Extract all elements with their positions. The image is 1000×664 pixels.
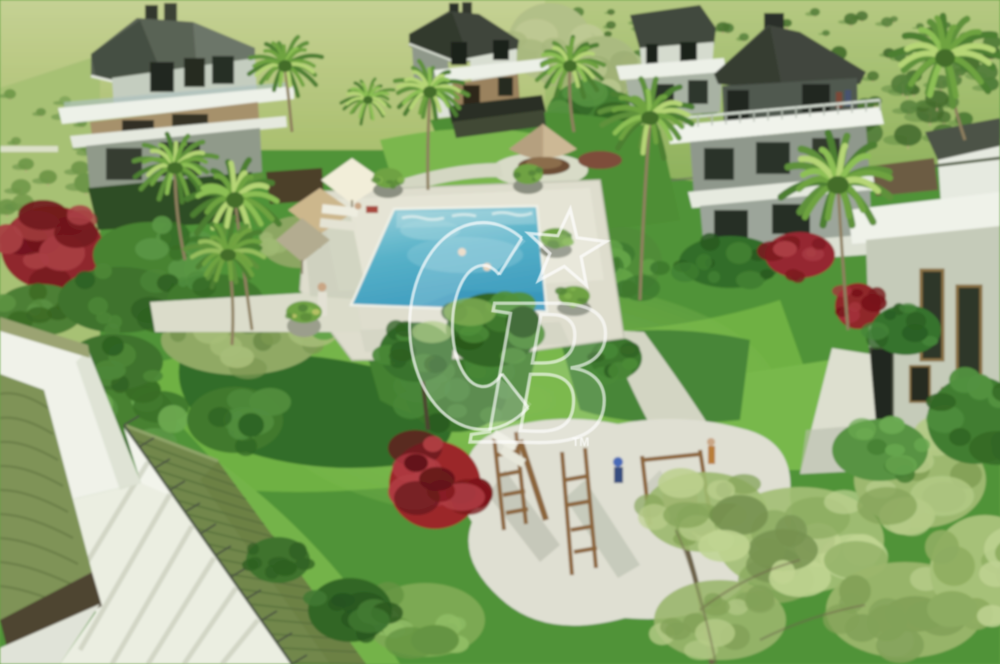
svg-text:B: B (470, 253, 613, 488)
svg-text:TM: TM (572, 435, 589, 449)
